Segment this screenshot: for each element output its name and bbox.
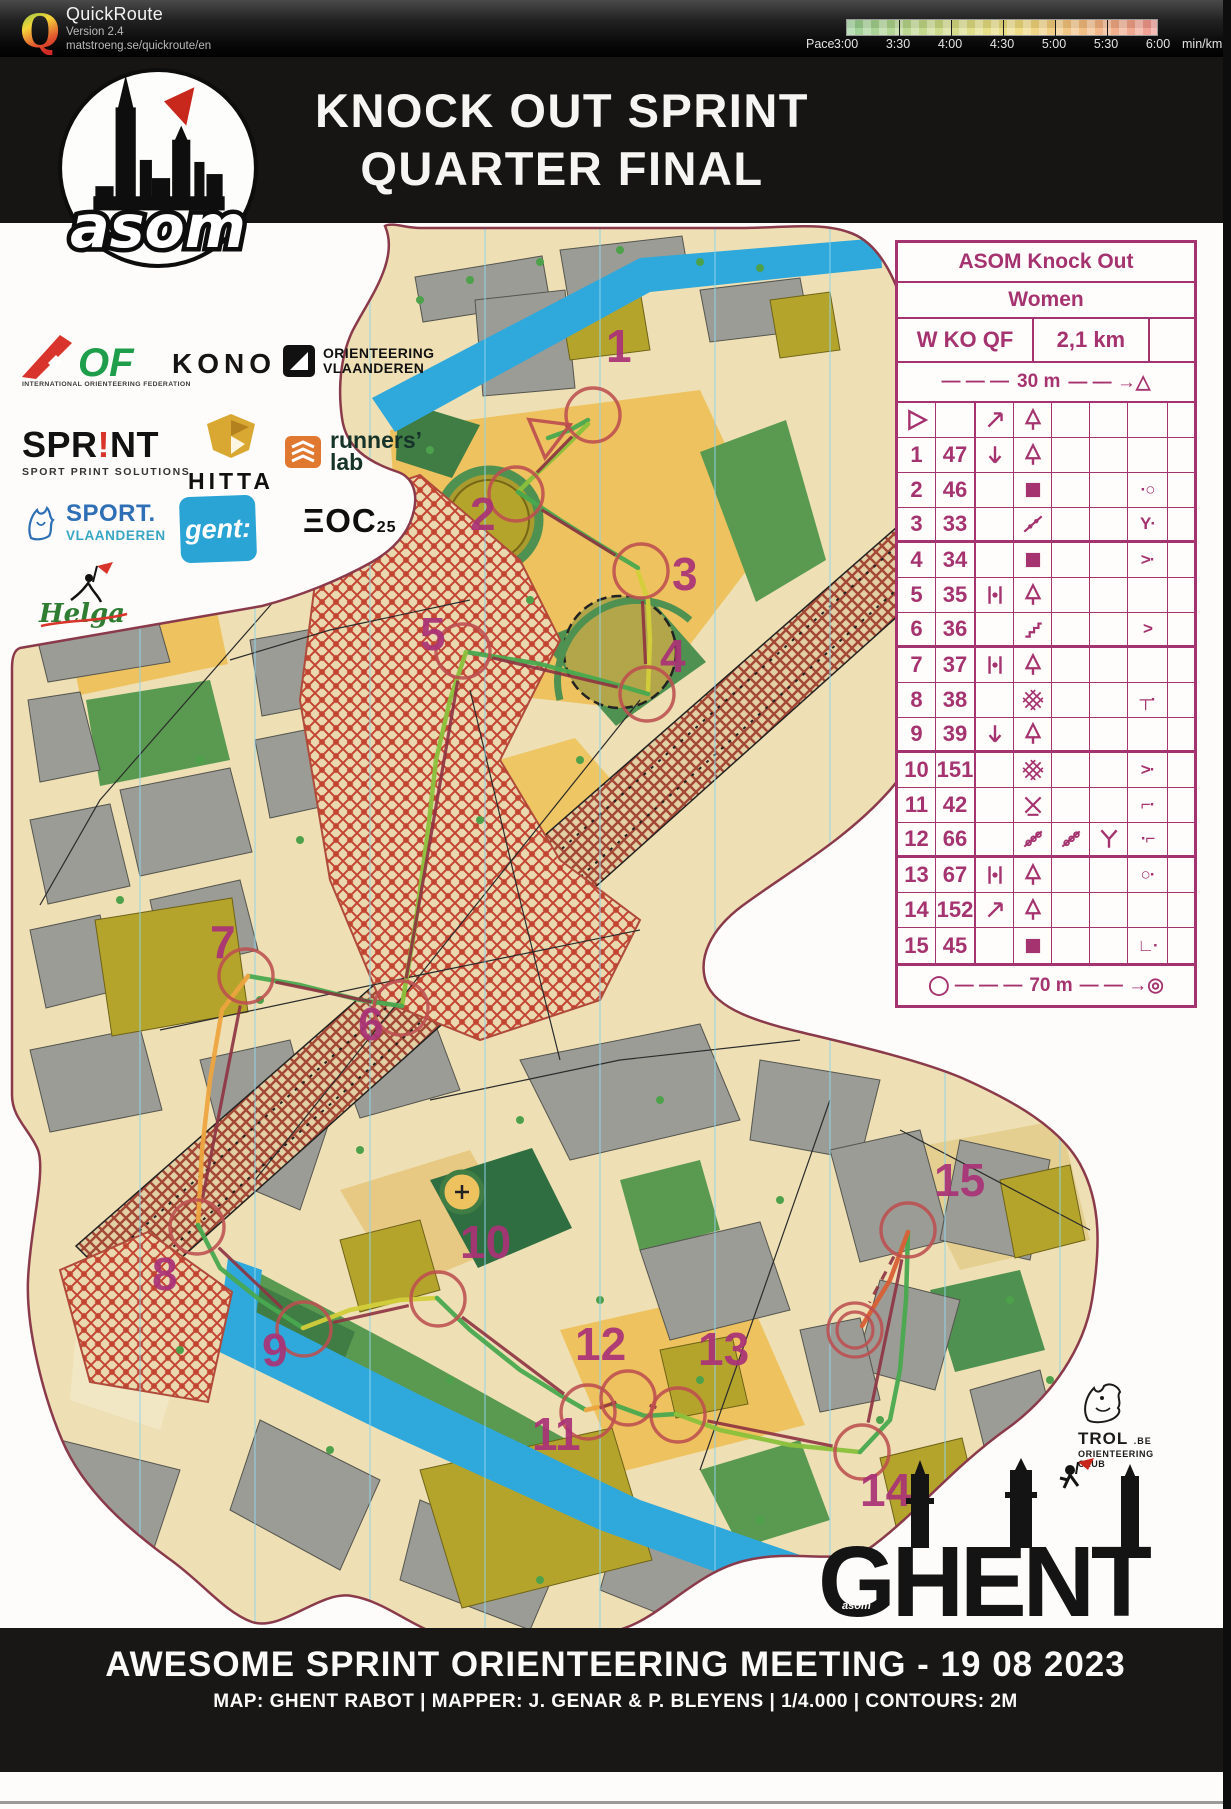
- event-title-line2: QUARTER FINAL: [262, 140, 862, 198]
- pace-tick-label: 4:30: [990, 37, 1014, 51]
- trol-name-text: TROL: [1078, 1429, 1128, 1448]
- control-number: 4: [660, 630, 686, 682]
- card-cell-a: 12: [898, 823, 936, 855]
- card-start-distance-row: — — — 30 m — — →△: [898, 363, 1194, 403]
- arrow-s-icon: [983, 722, 1007, 746]
- card-row: 535: [898, 578, 1194, 613]
- pace-label: Pace: [806, 37, 835, 51]
- card-cell-d: [1014, 928, 1052, 963]
- conifer-icon: [1021, 863, 1045, 887]
- card-row: 939: [898, 718, 1194, 753]
- footer-bar: AWESOME SPRINT ORIENTEERING MEETING - 19…: [0, 1628, 1231, 1772]
- card-title: ASOM Knock Out: [898, 243, 1194, 283]
- card-cell-b: 45: [936, 928, 976, 963]
- quickroute-logo-icon: Q: [18, 5, 64, 55]
- iof-wordmark: OF: [78, 347, 134, 379]
- svg-text:Q: Q: [20, 5, 60, 55]
- special-icon: [1021, 793, 1045, 817]
- card-cell-e: [1052, 823, 1090, 855]
- card-cell-c: [976, 788, 1014, 822]
- sponsor-gent: gent:: [180, 496, 256, 562]
- control-number: 8: [152, 1248, 178, 1300]
- control-number: 12: [575, 1318, 626, 1370]
- card-cell-h: [1168, 928, 1192, 963]
- pace-unit-label: min/km: [1182, 37, 1222, 51]
- card-cell-h: [1168, 823, 1192, 855]
- pace-tick-label: 3:00: [834, 37, 858, 51]
- conifer-icon: [1021, 653, 1045, 677]
- card-cell-e: [1052, 613, 1090, 645]
- pace-tick-label: 5:30: [1094, 37, 1118, 51]
- card-cell-h: [1168, 718, 1192, 750]
- event-title-line1: KNOCK OUT SPRINT: [262, 82, 862, 140]
- card-cell-g: [1128, 648, 1168, 682]
- card-course-row: W KO QF 2,1 km: [898, 319, 1194, 363]
- card-cell-h: [1168, 403, 1192, 437]
- card-cell-a: 14: [898, 893, 936, 927]
- sponsor-eoc25: ΞOC25: [303, 502, 397, 540]
- card-cell-d: [1014, 508, 1052, 540]
- start-dist-post: — — →△: [1068, 371, 1150, 394]
- card-cell-e: [1052, 718, 1090, 750]
- runners-line2: lab: [330, 452, 422, 474]
- card-cell-e: [1052, 753, 1090, 787]
- card-cell-b: 152: [936, 893, 976, 927]
- card-cell-h: [1168, 858, 1192, 892]
- card-cell-c: [976, 648, 1014, 682]
- card-cell-a: 6: [898, 613, 936, 645]
- card-cell-b: 39: [936, 718, 976, 750]
- control-number: 7: [210, 916, 236, 968]
- card-cell-d: [1014, 473, 1052, 507]
- control-number: 1: [606, 320, 632, 372]
- card-cell-f: [1090, 718, 1128, 750]
- card-cell-e: [1052, 438, 1090, 472]
- arrow-ne-icon: [983, 408, 1007, 432]
- card-cell-b: 66: [936, 823, 976, 855]
- finish-dist-value: 70 m: [1029, 975, 1072, 997]
- card-cell-b: 151: [936, 753, 976, 787]
- pace-tick-label: 3:30: [886, 37, 910, 51]
- card-cell-c: [976, 928, 1014, 963]
- card-cell-d: [1014, 823, 1052, 855]
- card-cell-d: [1014, 648, 1052, 682]
- card-cell-c: [976, 858, 1014, 892]
- iof-tagline: INTERNATIONAL ORIENTEERING FEDERATION: [22, 381, 191, 388]
- card-course-length: 2,1 km: [1034, 319, 1149, 361]
- control-number: 13: [698, 1323, 749, 1375]
- eoc-wordmark: ΞOC: [303, 502, 377, 539]
- pace-tick: [1055, 20, 1056, 37]
- trol-lion-icon: [1078, 1378, 1130, 1424]
- card-cell-f: [1090, 578, 1128, 612]
- stairs-icon: [1021, 617, 1045, 641]
- card-cell-a: 1: [898, 438, 936, 472]
- card-row: 1545∟·: [898, 928, 1194, 963]
- card-cell-g: >·: [1128, 543, 1168, 577]
- building-icon: [1021, 934, 1045, 958]
- card-cell-e: [1052, 508, 1090, 540]
- fence-o-icon: [1021, 827, 1045, 851]
- trol-club-logo: TROL .BE ORIENTEERING CLUB: [1078, 1378, 1198, 1469]
- card-cell-b: 38: [936, 683, 976, 717]
- runners-lab-icon: [284, 435, 322, 469]
- card-row: 1142⌐·: [898, 788, 1194, 823]
- gent-wordmark: gent:: [179, 495, 257, 564]
- quickroute-header: Q QuickRoute Version 2.4 matstroeng.se/q…: [0, 0, 1231, 57]
- card-cell-g: ○·: [1128, 858, 1168, 892]
- card-cell-g: [1128, 718, 1168, 750]
- helga-logo-icon: Helga: [35, 560, 135, 630]
- app-version: Version 2.4: [66, 26, 124, 38]
- card-cell-a: 13: [898, 858, 936, 892]
- card-cell-d: [1014, 718, 1052, 750]
- conifer-icon: [1021, 898, 1045, 922]
- start-dist-pre: — — —: [941, 371, 1009, 393]
- sponsor-helga: Helga: [35, 560, 135, 635]
- control-number: 2: [470, 488, 496, 540]
- scan-right-edge: [1223, 0, 1231, 1809]
- building-icon: [1021, 548, 1045, 572]
- kono-wordmark: KONO: [172, 348, 276, 380]
- card-cell-b: 37: [936, 648, 976, 682]
- card-row: 14152: [898, 893, 1194, 928]
- control-number: 9: [262, 1324, 288, 1376]
- card-row: 838┬·: [898, 683, 1194, 718]
- card-cell-c: [976, 578, 1014, 612]
- sport-vlaanderen-line2: VLAANDEREN: [66, 528, 166, 543]
- card-course-code: W KO QF: [898, 319, 1034, 361]
- card-rows: 147246·○333Y·434>·535636>737838┬·9391015…: [898, 403, 1194, 963]
- fence-icon: [1021, 512, 1045, 536]
- card-cell-a: 8: [898, 683, 936, 717]
- junction-y-icon: [1097, 827, 1121, 851]
- card-cell-a: 3: [898, 508, 936, 540]
- pace-gradient-bar: [846, 19, 1158, 36]
- card-cell-c: [976, 753, 1014, 787]
- card-cell-d: [1014, 858, 1052, 892]
- card-cell-g: ·○: [1128, 473, 1168, 507]
- card-cell-a: [898, 403, 936, 437]
- card-cell-d: [1014, 403, 1052, 437]
- card-cell-h: [1168, 613, 1192, 645]
- card-cell-b: 34: [936, 543, 976, 577]
- card-cell-c: [976, 438, 1014, 472]
- sponsor-hitta: HITTA: [188, 412, 274, 495]
- canopy-icon: [1021, 688, 1045, 712]
- card-cell-h: [1168, 578, 1192, 612]
- card-cell-a: 10: [898, 753, 936, 787]
- card-row: 434>·: [898, 543, 1194, 578]
- card-cell-g: >: [1128, 613, 1168, 645]
- card-cell-c: [976, 893, 1014, 927]
- asom-logo-word: asom: [70, 193, 246, 261]
- card-cell-e: [1052, 403, 1090, 437]
- card-cell-d: [1014, 438, 1052, 472]
- card-cell-e: [1052, 858, 1090, 892]
- card-cell-c: [976, 718, 1014, 750]
- card-cell-g: [1128, 893, 1168, 927]
- card-row: 1367○·: [898, 858, 1194, 893]
- sport-vlaanderen-line1: SPORT.: [66, 500, 166, 528]
- card-cell-g: ⌐·: [1128, 788, 1168, 822]
- card-row: 246·○: [898, 473, 1194, 508]
- sponsor-sprint: SPR!NT SPORT PRINT SOLUTIONS: [22, 424, 190, 478]
- card-cell-h: [1168, 473, 1192, 507]
- card-cell-d: [1014, 788, 1052, 822]
- card-cell-e: [1052, 683, 1090, 717]
- app-url: matstroeng.se/quickroute/en: [66, 40, 211, 52]
- card-cell-d: [1014, 753, 1052, 787]
- card-cell-e: [1052, 648, 1090, 682]
- card-cell-f: [1090, 543, 1128, 577]
- asom-logo: asom: [57, 66, 259, 270]
- card-cell-b: 35: [936, 578, 976, 612]
- card-cell-a: 2: [898, 473, 936, 507]
- card-cell-c: [976, 823, 1014, 855]
- card-cell-h: [1168, 648, 1192, 682]
- footer-line1: AWESOME SPRINT ORIENTEERING MEETING - 19…: [0, 1645, 1231, 1685]
- card-row: 1266·⌐: [898, 823, 1194, 858]
- card-cell-d: [1014, 543, 1052, 577]
- card-cell-h: [1168, 438, 1192, 472]
- sport-vlaanderen-lion-icon: [25, 502, 59, 542]
- card-cell-e: [1052, 928, 1090, 963]
- arrow-s-icon: [983, 443, 1007, 467]
- card-cell-f: [1090, 473, 1128, 507]
- between-icon: [983, 583, 1007, 607]
- event-title: KNOCK OUT SPRINT QUARTER FINAL: [262, 82, 862, 198]
- card-cell-d: [1014, 578, 1052, 612]
- between-icon: [983, 863, 1007, 887]
- card-cell-e: [1052, 788, 1090, 822]
- pace-tick-label: 4:00: [938, 37, 962, 51]
- card-cell-e: [1052, 543, 1090, 577]
- arrow-ne-icon: [983, 898, 1007, 922]
- conifer-icon: [1021, 408, 1045, 432]
- card-cell-g: Y·: [1128, 508, 1168, 540]
- between-icon: [983, 653, 1007, 677]
- pace-tick: [1107, 20, 1108, 37]
- card-cell-b: 67: [936, 858, 976, 892]
- card-cell-h: [1168, 683, 1192, 717]
- card-row: 636>: [898, 613, 1194, 648]
- card-cell-g: ┬·: [1128, 683, 1168, 717]
- card-cell-g: ∟·: [1128, 928, 1168, 963]
- pace-tick: [899, 20, 900, 37]
- ovl-line2: VLAANDEREN: [323, 361, 434, 376]
- card-cell-h: [1168, 753, 1192, 787]
- pace-tick-label: 5:00: [1042, 37, 1066, 51]
- card-cell-e: [1052, 893, 1090, 927]
- exported-map-page: Q QuickRoute Version 2.4 matstroeng.se/q…: [0, 0, 1231, 1809]
- card-cell-a: 9: [898, 718, 936, 750]
- card-cell-b: 33: [936, 508, 976, 540]
- sprint-wordmark: SPR!NT: [22, 424, 190, 466]
- card-cell-f: [1090, 823, 1128, 855]
- ghent-wordmark: GHENT: [818, 1532, 1148, 1632]
- control-description-card: ASOM Knock Out Women W KO QF 2,1 km — — …: [895, 240, 1197, 1008]
- card-cell-f: [1090, 753, 1128, 787]
- control-number: 5: [420, 608, 446, 660]
- card-cell-g: >·: [1128, 753, 1168, 787]
- card-cell-f: [1090, 613, 1128, 645]
- card-row: [898, 403, 1194, 438]
- card-cell-a: 11: [898, 788, 936, 822]
- card-cell-c: [976, 683, 1014, 717]
- finish-dist-pre: ◯ — — —: [928, 974, 1022, 997]
- card-cell-b: 42: [936, 788, 976, 822]
- card-cell-b: 47: [936, 438, 976, 472]
- control-number: 10: [460, 1216, 511, 1268]
- card-cell-d: [1014, 683, 1052, 717]
- card-cell-h: [1168, 508, 1192, 540]
- card-cell-g: ·⌐: [1128, 823, 1168, 855]
- start-icon: [905, 408, 929, 432]
- sponsor-orienteering-vlaanderen: ORIENTEERING VLAANDEREN: [282, 344, 434, 378]
- conifer-icon: [1021, 583, 1045, 607]
- card-cell-a: 4: [898, 543, 936, 577]
- card-cell-d: [1014, 613, 1052, 645]
- card-cell-f: [1090, 858, 1128, 892]
- ghent-runner-icon: [1060, 1458, 1094, 1488]
- card-row: 737: [898, 648, 1194, 683]
- card-row: 10151>·: [898, 753, 1194, 788]
- card-cell-f: [1090, 683, 1128, 717]
- card-cell-g: [1128, 438, 1168, 472]
- card-cell-b: [936, 403, 976, 437]
- iof-swoosh-icon: [22, 333, 74, 379]
- card-cell-d: [1014, 893, 1052, 927]
- sponsor-sport-vlaanderen: SPORT. VLAANDEREN: [25, 500, 166, 543]
- card-row: 147: [898, 438, 1194, 473]
- card-cell-f: [1090, 438, 1128, 472]
- ghent-asom-label: asom: [842, 1600, 871, 1612]
- card-cell-f: [1090, 893, 1128, 927]
- pace-tick: [951, 20, 952, 37]
- conifer-icon: [1021, 443, 1045, 467]
- footer-line2: MAP: GHENT RABOT | MAPPER: J. GENAR & P.…: [0, 1691, 1231, 1713]
- fence-o-icon: [1059, 827, 1083, 851]
- start-dist-value: 30 m: [1017, 371, 1060, 393]
- card-cell-f: [1090, 508, 1128, 540]
- sprint-tagline: SPORT PRINT SOLUTIONS: [22, 466, 190, 478]
- conifer-icon: [1021, 722, 1045, 746]
- card-row: 333Y·: [898, 508, 1194, 543]
- card-cell-h: [1168, 788, 1192, 822]
- card-finish-distance-row: ◯ — — — 70 m — — →◎: [898, 963, 1194, 1005]
- building-icon: [1021, 478, 1045, 502]
- pace-tick-label: 6:00: [1146, 37, 1170, 51]
- trol-be-text: .BE: [1134, 1436, 1152, 1446]
- card-cell-c: [976, 613, 1014, 645]
- hitta-shield-icon: [205, 412, 257, 460]
- app-title: QuickRoute: [66, 4, 163, 25]
- card-cell-g: [1128, 403, 1168, 437]
- card-cell-c: [976, 508, 1014, 540]
- hitta-wordmark: HITTA: [188, 468, 274, 495]
- pace-tick: [1003, 20, 1004, 37]
- control-number: 15: [934, 1154, 985, 1206]
- control-number: 11: [532, 1408, 581, 1460]
- eoc-number: 25: [377, 519, 397, 536]
- card-cell-e: [1052, 578, 1090, 612]
- card-cell-h: [1168, 893, 1192, 927]
- card-cell-f: [1090, 928, 1128, 963]
- control-number: 6: [358, 998, 384, 1050]
- canopy-icon: [1021, 758, 1045, 782]
- card-class: Women: [898, 283, 1194, 319]
- card-cell-f: [1090, 403, 1128, 437]
- card-cell-c: [976, 403, 1014, 437]
- sponsor-kono: KONO: [172, 348, 276, 380]
- scan-bottom-edge: [0, 1801, 1231, 1804]
- card-cell-a: 5: [898, 578, 936, 612]
- card-cell-a: 15: [898, 928, 936, 963]
- sponsor-iof: OF INTERNATIONAL ORIENTEERING FEDERATION: [22, 333, 191, 388]
- ovl-line1: ORIENTEERING: [323, 346, 434, 361]
- sponsor-runners-lab: runners’ lab: [284, 430, 422, 474]
- card-cell-g: [1128, 578, 1168, 612]
- card-cell-e: [1052, 473, 1090, 507]
- card-cell-h: [1168, 543, 1192, 577]
- card-cell-a: 7: [898, 648, 936, 682]
- control-number: 3: [672, 548, 698, 600]
- card-cell-f: [1090, 788, 1128, 822]
- card-course-spare: [1150, 319, 1194, 361]
- finish-dist-post: — — →◎: [1080, 974, 1164, 997]
- orienteering-vlaanderen-icon: [282, 344, 316, 378]
- card-cell-c: [976, 543, 1014, 577]
- card-cell-b: 36: [936, 613, 976, 645]
- card-cell-f: [1090, 648, 1128, 682]
- card-cell-c: [976, 473, 1014, 507]
- card-cell-b: 46: [936, 473, 976, 507]
